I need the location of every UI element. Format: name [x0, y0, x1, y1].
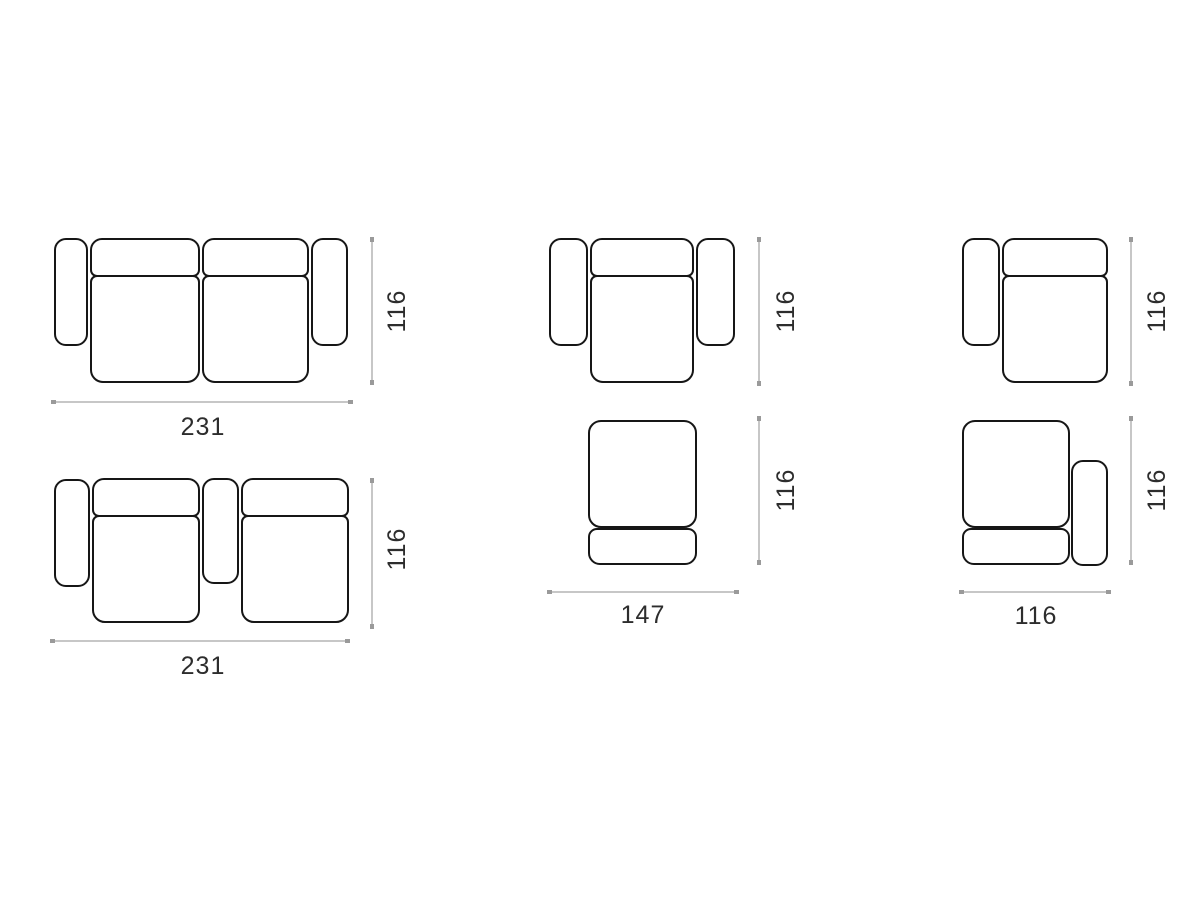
height-dimension-label: 116	[1142, 450, 1172, 530]
height-dimension-line	[1130, 417, 1132, 564]
armrest-right	[1071, 460, 1108, 566]
width-dimension-line	[960, 591, 1110, 593]
furniture-dimension-diagram: 116 231 116 231 116 116 147	[0, 0, 1200, 900]
width-dimension-label: 116	[996, 601, 1076, 631]
figure-module-right-armrest: 116 116	[0, 0, 1200, 900]
backrest-cushion	[962, 528, 1070, 565]
seat-cushion	[962, 420, 1070, 528]
